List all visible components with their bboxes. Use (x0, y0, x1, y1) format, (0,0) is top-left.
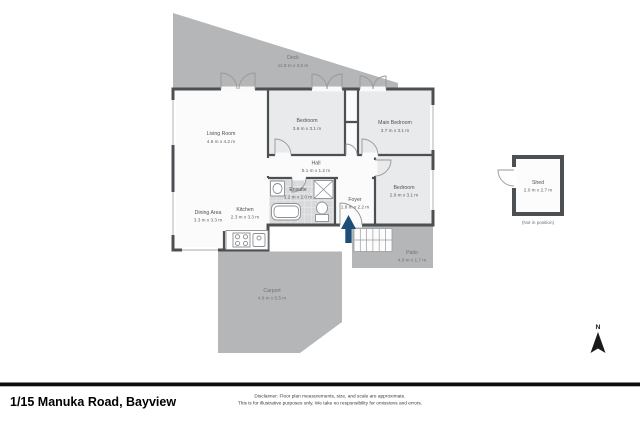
svg-text:2.3 m x 3.3 m: 2.3 m x 3.3 m (231, 215, 259, 220)
svg-text:4.6 m x 5.5 m: 4.6 m x 5.5 m (258, 296, 286, 301)
svg-text:4.0 m x 1.7 m: 4.0 m x 1.7 m (398, 258, 426, 263)
burner-icon (235, 241, 239, 245)
floorplan-page: Deck 11.8 m x 3.6 m Living Room 4.6 m x … (0, 0, 640, 426)
svg-text:Patio: Patio (406, 250, 418, 256)
sink-drain-icon (257, 236, 261, 240)
disclaimer-line-2: This is for illustrative purposes only. … (238, 401, 422, 407)
svg-text:3.2 m x 2.0 m: 3.2 m x 2.0 m (284, 195, 312, 200)
svg-text:2.9 m x 3.1 m: 2.9 m x 3.1 m (390, 193, 418, 198)
svg-text:Kitchen: Kitchen (236, 207, 253, 213)
svg-text:Carport: Carport (263, 288, 281, 294)
burner-icon (243, 241, 247, 245)
shed-structure: Shed 2.0 m x 2.7 m (Not in position) (498, 157, 562, 225)
svg-text:2.0 m x 2.7 m: 2.0 m x 2.7 m (524, 188, 552, 193)
svg-text:Hall: Hall (312, 161, 321, 167)
svg-text:Bedroom: Bedroom (296, 118, 317, 124)
kitchen-fixtures (226, 231, 268, 250)
north-arrow-icon: N (591, 324, 606, 353)
vanity-basin-icon (273, 184, 282, 194)
svg-text:Dining Area: Dining Area (195, 210, 222, 216)
disclaimer-line-1: Disclaimer: Floor plan measurements, siz… (254, 394, 405, 400)
bathtub-inner (274, 206, 299, 218)
svg-text:Living Room: Living Room (207, 131, 236, 137)
svg-text:Ensuite: Ensuite (289, 187, 306, 193)
toilet-bowl (317, 202, 328, 214)
svg-text:Shed: Shed (532, 180, 544, 186)
deck-area (173, 13, 398, 89)
toilet-tank (316, 215, 329, 222)
svg-text:3.6 m x 3.1 m: 3.6 m x 3.1 m (293, 126, 321, 131)
svg-text:11.8 m x 3.6 m: 11.8 m x 3.6 m (278, 63, 309, 68)
svg-text:3.3 m x 3.3 m: 3.3 m x 3.3 m (194, 218, 222, 223)
footer-divider-bar (0, 383, 640, 387)
svg-text:Deck: Deck (287, 55, 299, 61)
patio-stairs (354, 229, 392, 252)
shed-note: (Not in position) (522, 220, 555, 225)
compass-n-label: N (596, 324, 601, 331)
burner-icon (235, 235, 239, 239)
svg-text:1.8 m x 2.2 m: 1.8 m x 2.2 m (341, 205, 369, 210)
svg-text:5.1 m x 1.2 m: 5.1 m x 1.2 m (302, 168, 330, 173)
svg-text:Foyer: Foyer (348, 197, 362, 203)
floorplan-canvas: Deck 11.8 m x 3.6 m Living Room 4.6 m x … (0, 0, 640, 426)
page-title: 1/15 Manuka Road, Bayview (10, 395, 176, 409)
svg-text:Bedroom: Bedroom (393, 185, 414, 191)
svg-text:3.7 m x 3.1 m: 3.7 m x 3.1 m (381, 128, 409, 133)
burner-icon (243, 235, 247, 239)
svg-text:4.6 m x 4.2 m: 4.6 m x 4.2 m (207, 139, 235, 144)
svg-text:Main Bedroom: Main Bedroom (378, 120, 412, 126)
carport-area (218, 252, 342, 354)
